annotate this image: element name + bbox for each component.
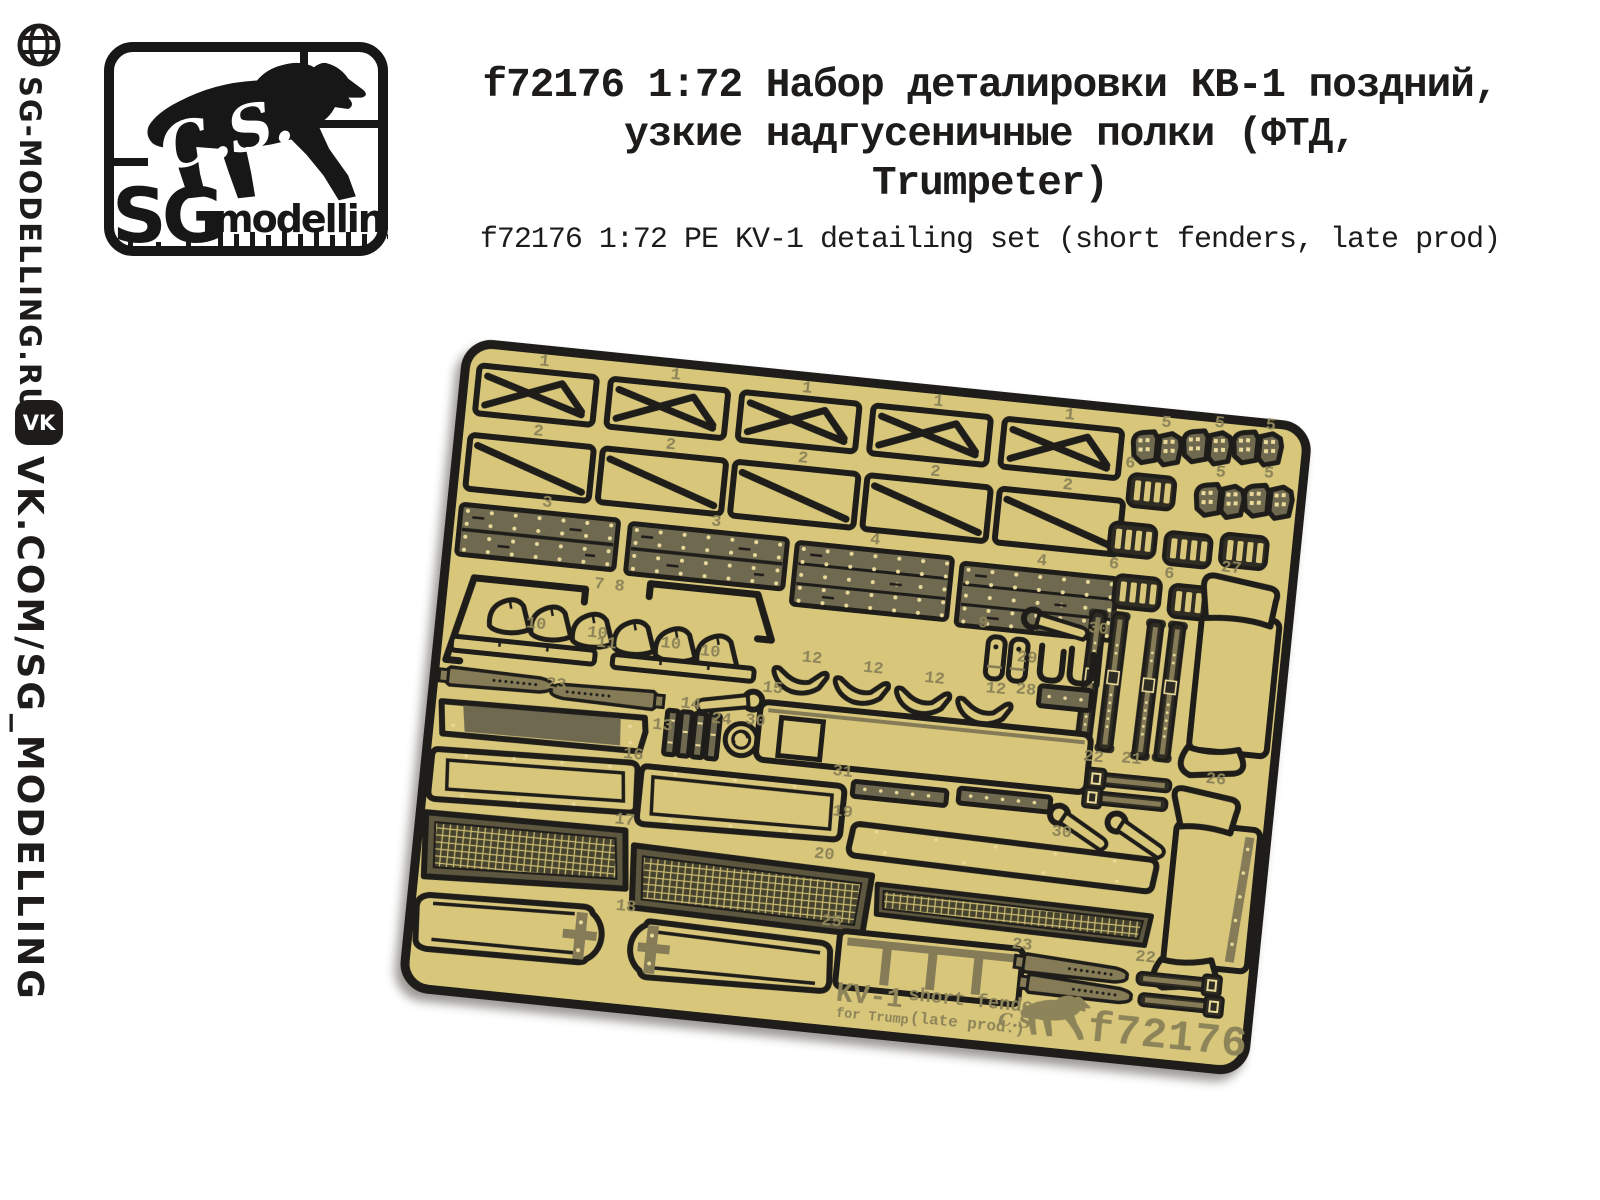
part-number-label: 4 <box>869 531 881 551</box>
part-number-label: 20 <box>813 845 835 866</box>
part-28 <box>1038 686 1092 711</box>
part-number-label: 6 <box>1124 454 1136 474</box>
part-number-label: 11 <box>595 634 617 655</box>
part-number-label: 21 <box>1120 749 1142 770</box>
header-titles: f72176 1:72 Набор деталировки КВ-1 поздн… <box>400 62 1580 257</box>
part-number-label: 29 <box>1016 648 1038 669</box>
part-number-label: 1 <box>932 392 944 412</box>
part-number-label: 2 <box>929 462 941 482</box>
page-title: f72176 1:72 Набор деталировки КВ-1 поздн… <box>400 62 1580 209</box>
part-number-label: 3 <box>541 493 553 513</box>
part-number-label: 31 <box>831 762 853 783</box>
title-line-3: Trumpeter) <box>400 160 1580 209</box>
part-number-label: 25 <box>820 912 842 933</box>
title-line-2: узкие надгусеничные полки (ФТД, <box>400 111 1580 160</box>
part-number-label: 16 <box>622 745 644 766</box>
part-number-label: 23 <box>545 675 567 696</box>
part-number-label: 1 <box>1064 406 1076 426</box>
part-number-label: 5 <box>1214 414 1226 434</box>
part-number-label: 3 <box>710 513 722 533</box>
part-number-label: 1 <box>538 352 550 372</box>
sg-modelling-logo: C.S. SG modelling <box>104 42 388 256</box>
part-number-label: 6 <box>1108 555 1120 575</box>
page-subtitle: f72176 1:72 PE KV-1 detailing set (short… <box>400 223 1580 257</box>
part-number-label: 10 <box>699 642 721 663</box>
part-number-label: 9 <box>977 614 989 634</box>
globe-icon <box>16 22 62 68</box>
part-number-label: 18 <box>615 897 637 918</box>
part-number-label: 28 <box>1015 680 1037 701</box>
part-number-label: 4 <box>1036 552 1048 572</box>
part-number-label: 24 <box>710 710 732 731</box>
vk-url[interactable]: VK.COM/SG_MODELLING <box>9 456 50 1002</box>
part-number-label: 14 <box>680 694 702 715</box>
part-number-label: 5 <box>1215 463 1227 483</box>
part-number-label: 1 <box>801 379 813 399</box>
part-number-label: 23 <box>1011 935 1033 956</box>
part-number-label: 30 <box>1051 823 1073 844</box>
part-number-label: 17 <box>614 810 636 831</box>
part-number-label: 7 8 <box>593 575 625 597</box>
part-number-label: 6 <box>1163 565 1175 585</box>
vk-icon[interactable]: VK <box>15 400 63 445</box>
title-line-1: f72176 1:72 Набор деталировки КВ-1 поздн… <box>400 62 1580 111</box>
part-number-label: 2 <box>1062 476 1074 496</box>
page: SG-MODELLING.RU VK VK.COM/SG_MODELLING C… <box>0 0 1600 1200</box>
part-number-label: 12 <box>923 669 945 690</box>
part-number-label: 5 <box>1263 464 1275 484</box>
part-number-label: 1 <box>670 366 682 386</box>
part-number-label: 22 <box>1082 747 1104 768</box>
vk-icon-text: VK <box>23 411 56 435</box>
part-number-label: 5 <box>1265 416 1277 436</box>
part-number-label: 30 <box>1087 619 1109 640</box>
part-number-label: 15 <box>762 679 784 700</box>
part-number-label: 30 <box>744 711 766 732</box>
part-number-label: 19 <box>831 802 853 823</box>
part-number-label: 12 <box>801 648 823 669</box>
part-number-label: 13 <box>651 716 673 737</box>
site-url[interactable]: SG-MODELLING.RU <box>13 76 47 413</box>
part-number-label: 12 <box>985 679 1007 700</box>
part-number-label: 12 <box>862 659 884 680</box>
photo-etch-fret: KV-1 short fenders for Trump (late prod.… <box>356 312 1366 1137</box>
part-number-label: 26 <box>1205 770 1227 791</box>
part-number-label: 2 <box>532 422 544 442</box>
part-number-label: 10 <box>525 614 547 635</box>
part-number-label: 27 <box>1220 558 1242 579</box>
part-number-label: 2 <box>665 436 677 456</box>
part-number-label: 5 <box>1160 414 1172 434</box>
part-number-label: 10 <box>660 634 682 655</box>
part-number-label: 22 <box>1134 948 1156 969</box>
part-number-label: 2 <box>797 449 809 469</box>
